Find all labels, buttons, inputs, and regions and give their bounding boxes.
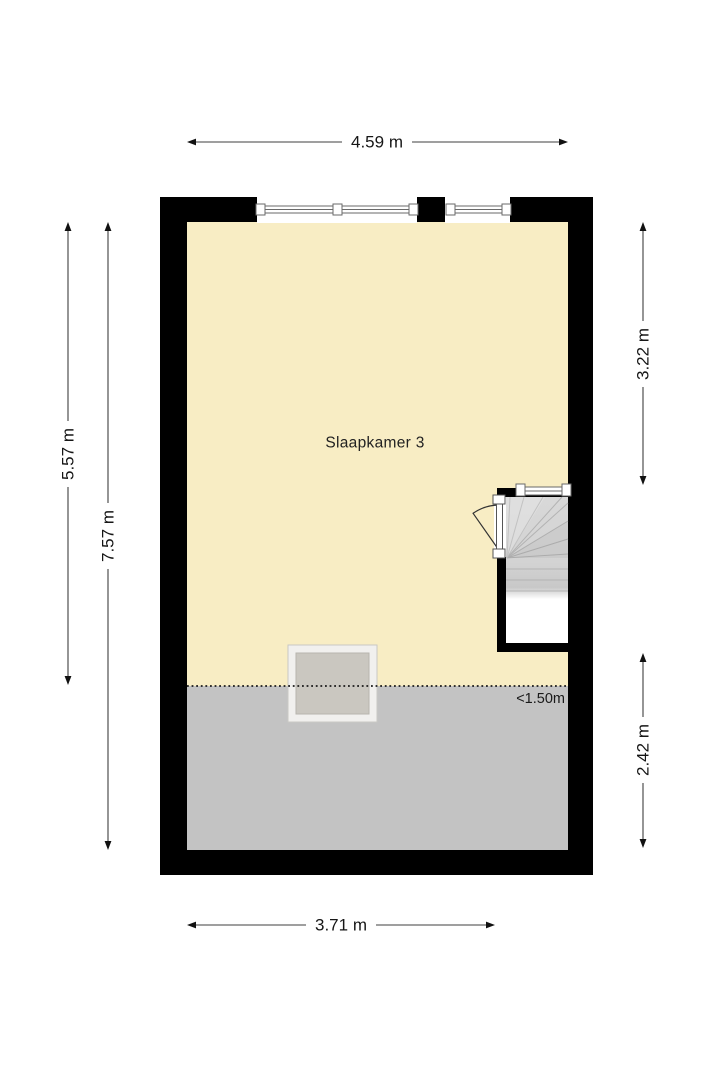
dimension-label-left-inner-height: 7.57 m: [98, 503, 119, 569]
wall-left: [160, 197, 187, 875]
wall-right: [568, 197, 593, 875]
door-frame-post: [493, 549, 505, 558]
dimension-label-bottom-width: 3.71 m: [306, 915, 376, 936]
skylight-group: [288, 645, 377, 722]
skylight-glass: [296, 653, 369, 714]
dimension-label-left-outer-height: 5.57 m: [58, 421, 79, 487]
window-icon: [256, 204, 418, 215]
door-leaf: [497, 504, 503, 549]
window-icon: [446, 204, 511, 215]
door-frame-post: [493, 495, 505, 504]
windows-group: [256, 196, 511, 223]
dimension-label-top-width: 4.59 m: [342, 132, 412, 153]
room-name-label: Slaapkamer 3: [325, 435, 424, 451]
dimension-label-right-upper-height: 3.22 m: [633, 321, 654, 387]
floorplan-canvas: 4.59 m 3.71 m 5.57 m 7.57 m 3.22 m 2.42 …: [0, 0, 711, 1067]
wall-bottom: [160, 850, 593, 875]
dimension-label-right-lower-height: 2.42 m: [633, 717, 654, 783]
low-headroom-label: <1.50m: [516, 692, 565, 707]
